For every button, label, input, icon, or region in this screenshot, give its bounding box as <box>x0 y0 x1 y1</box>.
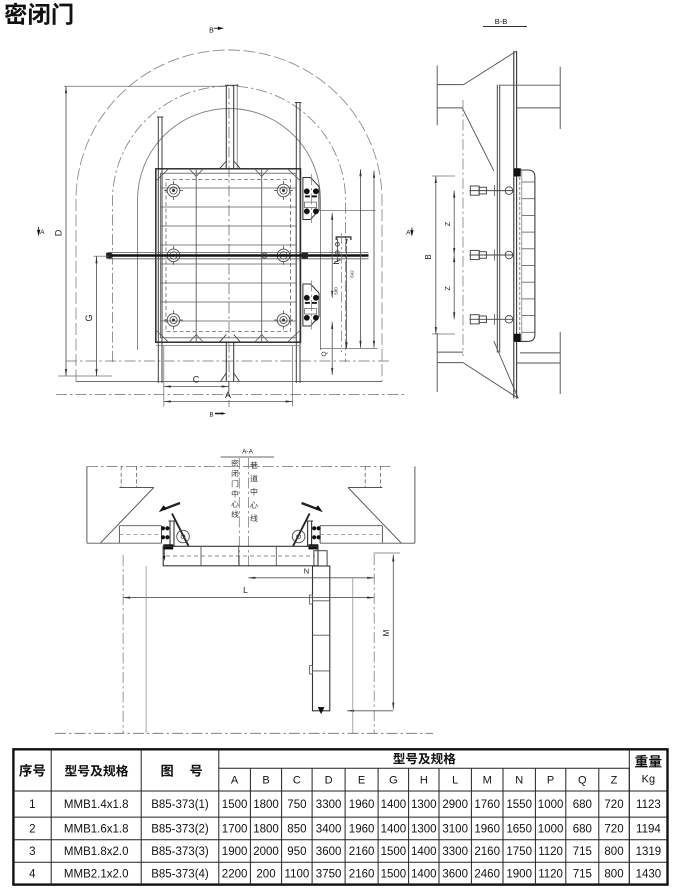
svg-text:B: B <box>262 775 269 787</box>
svg-text:Kg: Kg <box>642 774 655 786</box>
svg-text:1194: 1194 <box>636 824 661 836</box>
svg-text:Z: Z <box>611 775 618 787</box>
svg-text:1: 1 <box>29 799 35 811</box>
svg-text:750: 750 <box>287 799 306 811</box>
svg-text:950: 950 <box>287 846 306 858</box>
svg-text:B85-373(2): B85-373(2) <box>151 824 209 836</box>
svg-text:1650: 1650 <box>506 824 532 836</box>
svg-text:B85-373(1): B85-373(1) <box>151 799 209 811</box>
svg-text:1760: 1760 <box>474 799 500 811</box>
svg-text:715: 715 <box>573 846 592 858</box>
svg-text:2900: 2900 <box>442 799 468 811</box>
svg-text:N: N <box>304 567 309 576</box>
svg-text:1400: 1400 <box>411 846 437 858</box>
svg-text:1500: 1500 <box>381 869 407 881</box>
svg-text:2: 2 <box>29 824 35 836</box>
svg-text:A-A: A-A <box>242 449 254 456</box>
svg-text:Q: Q <box>578 775 587 787</box>
svg-text:Z: Z <box>443 221 452 226</box>
svg-text:3100: 3100 <box>442 824 468 836</box>
svg-text:B85-373(4): B85-373(4) <box>151 869 209 881</box>
svg-text:B: B <box>424 254 433 259</box>
svg-text:B-B: B-B <box>495 17 508 26</box>
svg-text:1430: 1430 <box>636 869 662 881</box>
svg-text:715: 715 <box>573 869 592 881</box>
svg-text:1400: 1400 <box>381 799 407 811</box>
svg-text:1400: 1400 <box>411 869 437 881</box>
svg-text:MMB2.1x2.0: MMB2.1x2.0 <box>64 869 129 881</box>
svg-text:1960: 1960 <box>349 799 375 811</box>
svg-text:1120: 1120 <box>538 869 563 881</box>
svg-text:1120: 1120 <box>538 846 563 858</box>
svg-text:1800: 1800 <box>253 824 279 836</box>
svg-text:G: G <box>84 314 94 321</box>
svg-text:1750: 1750 <box>506 846 532 858</box>
svg-text:2460: 2460 <box>474 869 500 881</box>
svg-text:D: D <box>325 775 333 787</box>
svg-text:1700: 1700 <box>222 824 248 836</box>
svg-text:L: L <box>452 775 458 787</box>
svg-text:3: 3 <box>29 846 35 858</box>
svg-text:800: 800 <box>604 846 623 858</box>
svg-text:3300: 3300 <box>442 846 468 858</box>
svg-text:1100: 1100 <box>285 869 310 881</box>
svg-text:L: L <box>243 585 248 595</box>
svg-text:B85-373(3): B85-373(3) <box>151 846 209 858</box>
svg-text:800: 800 <box>604 869 623 881</box>
svg-text:M: M <box>483 775 492 787</box>
svg-text:1900: 1900 <box>506 869 532 881</box>
svg-text:Q: Q <box>321 351 328 356</box>
svg-text:850: 850 <box>287 824 306 836</box>
svg-text:720: 720 <box>604 824 623 836</box>
svg-text:B: B <box>209 413 213 419</box>
svg-text:Z: Z <box>443 286 452 291</box>
svg-text:680: 680 <box>573 799 592 811</box>
svg-text:MMB1.4x1.8: MMB1.4x1.8 <box>64 799 129 811</box>
svg-text:E: E <box>358 775 365 787</box>
svg-text:M: M <box>382 629 391 636</box>
svg-text:MMB1.8x2.0: MMB1.8x2.0 <box>64 846 129 858</box>
svg-text:H: H <box>420 775 428 787</box>
svg-text:3750: 3750 <box>316 869 342 881</box>
svg-text:1123: 1123 <box>636 799 661 811</box>
svg-text:1550: 1550 <box>506 799 532 811</box>
svg-text:2160: 2160 <box>349 846 375 858</box>
svg-text:2160: 2160 <box>474 846 500 858</box>
svg-text:680: 680 <box>573 824 592 836</box>
svg-text:3600: 3600 <box>316 846 342 858</box>
svg-text:1900: 1900 <box>222 846 248 858</box>
svg-text:3600: 3600 <box>442 869 468 881</box>
svg-text:1000: 1000 <box>538 799 564 811</box>
svg-text:N: N <box>515 775 523 787</box>
svg-text:1000: 1000 <box>538 824 564 836</box>
svg-text:1500: 1500 <box>381 846 407 858</box>
svg-text:1800: 1800 <box>253 799 279 811</box>
svg-text:3300: 3300 <box>316 799 342 811</box>
svg-text:2000: 2000 <box>253 846 279 858</box>
svg-text:A: A <box>225 390 231 400</box>
svg-text:2160: 2160 <box>349 869 375 881</box>
svg-text:G: G <box>389 775 398 787</box>
svg-text:580: 580 <box>334 287 339 295</box>
svg-text:4: 4 <box>29 869 36 881</box>
svg-text:1960: 1960 <box>349 824 375 836</box>
svg-text:A: A <box>40 229 45 236</box>
svg-text:B: B <box>209 28 214 35</box>
svg-text:1400: 1400 <box>381 824 407 836</box>
svg-text:P: P <box>547 775 554 787</box>
svg-text:1300: 1300 <box>411 799 437 811</box>
svg-text:D: D <box>54 229 64 236</box>
svg-text:C: C <box>293 775 301 787</box>
svg-text:A: A <box>231 775 239 787</box>
svg-text:1500: 1500 <box>222 799 248 811</box>
svg-text:MMB1.6x1.8: MMB1.6x1.8 <box>64 824 129 836</box>
svg-text:2200: 2200 <box>222 869 248 881</box>
svg-text:C: C <box>193 375 200 385</box>
svg-text:1300: 1300 <box>411 824 437 836</box>
svg-text:3400: 3400 <box>316 824 342 836</box>
svg-text:1960: 1960 <box>474 824 500 836</box>
svg-text:200: 200 <box>256 869 275 881</box>
svg-text:642: 642 <box>350 270 355 278</box>
svg-text:1319: 1319 <box>636 846 662 858</box>
svg-text:720: 720 <box>604 799 623 811</box>
